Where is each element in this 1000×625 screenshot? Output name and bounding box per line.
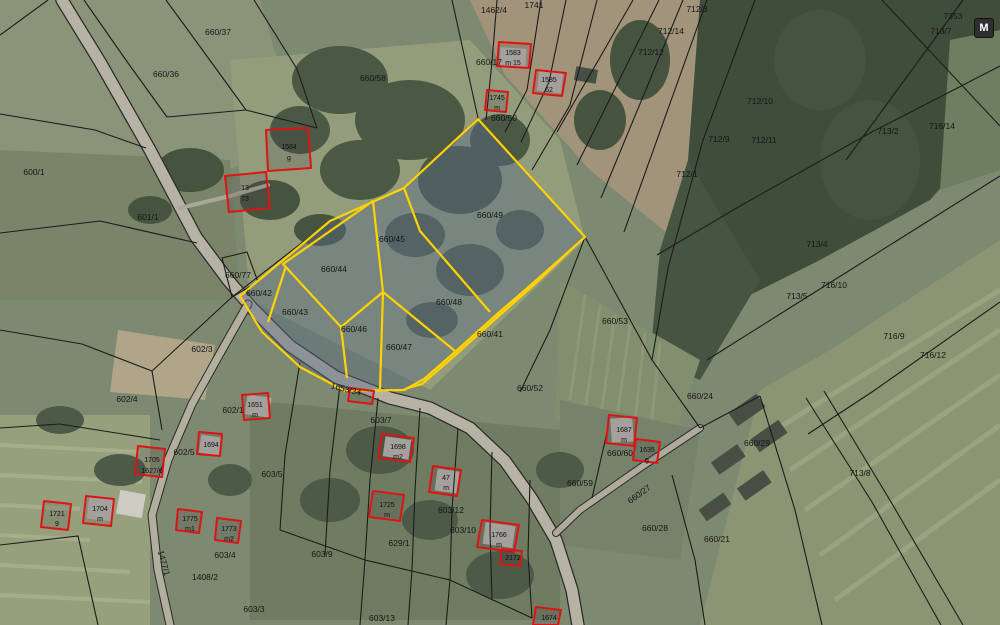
building-label: 1584	[281, 144, 297, 151]
parcel-label: 712/12	[638, 47, 664, 57]
parcel-label: 660/49	[477, 210, 503, 220]
parcel-label: 603/9	[311, 549, 333, 559]
parcel-label: 660/37	[205, 27, 231, 37]
building-label: m	[97, 516, 103, 523]
building-label: g	[287, 155, 291, 162]
parcel-label: 602/1	[222, 405, 244, 415]
building-label: 73	[241, 196, 249, 203]
parcel-label: 713/5	[786, 291, 808, 301]
parcel-label: 660/48	[436, 297, 462, 307]
building-label: 1766	[491, 532, 507, 539]
parcel-label: 629/1	[388, 538, 410, 548]
parcel-label: 660/21	[704, 534, 730, 544]
parcel-label: 660/50	[491, 113, 517, 123]
parcel-label: 660/47	[386, 342, 412, 352]
building-label: 1635	[639, 447, 655, 454]
parcel-label: 660/29	[744, 438, 770, 448]
building-label: 1704	[92, 506, 108, 513]
parcel-label: 712/14	[658, 26, 684, 36]
parcel-label: 660/43	[282, 307, 308, 317]
building-label: 1694	[203, 442, 219, 449]
building-label: 1745	[489, 95, 505, 102]
parcel-label: 660/60	[607, 448, 633, 458]
parcel-label: 601/1	[137, 212, 159, 222]
building-label: 2172	[505, 555, 521, 562]
parcel-label: 603/5	[261, 469, 283, 479]
parcel-label: 603/4	[214, 550, 236, 560]
building-label: m2	[393, 454, 403, 461]
parcel-label: 660/52	[517, 383, 543, 393]
parcel-label: 713/7	[930, 26, 952, 36]
parcel-label: 716/14	[929, 121, 955, 131]
building-label: 1651	[247, 402, 263, 409]
building-label: m	[496, 542, 502, 549]
parcel-label: 660/58	[360, 73, 386, 83]
building-label: m2	[224, 536, 234, 543]
parcel-label: 712/9	[708, 134, 730, 144]
parcel-label: 660/46	[341, 324, 367, 334]
parcel-label: 712/3	[686, 4, 708, 14]
parcel-label: 603/7	[370, 415, 392, 425]
building-label: 62	[545, 87, 553, 94]
parcel-label: 1462/4	[481, 5, 507, 15]
parcel-label: 713/2	[877, 126, 899, 136]
parcel-label: 660/77	[225, 270, 251, 280]
parcel-label: 660/42	[246, 288, 272, 298]
building-label: m	[252, 412, 258, 419]
parcel-label: 1408/2	[192, 572, 218, 582]
parcel-label: 603/3	[243, 604, 265, 614]
building-label: 13	[241, 185, 249, 192]
building-label: 1721	[49, 511, 65, 518]
building-label: 1775	[182, 516, 198, 523]
parcel-label: 660/45	[379, 234, 405, 244]
parcel-label: 602/5	[173, 447, 195, 457]
parcel-label: 603/10	[450, 525, 476, 535]
cadastral-map-viewport[interactable]: 660/37 660/36 600/1 601/1 1462/4 1741 66…	[0, 0, 1000, 625]
building-label: m	[621, 437, 627, 444]
map-control-m-button[interactable]: M	[974, 18, 994, 38]
building-label: 1674	[541, 615, 557, 622]
building-label: m	[494, 105, 500, 112]
building-label: m	[443, 485, 449, 492]
parcel-label: 716/10	[821, 280, 847, 290]
building-label: 1627/6	[141, 468, 163, 475]
parcel-label: 602/3	[191, 344, 213, 354]
building-label: g	[645, 457, 649, 464]
parcel-label: 660/41	[477, 329, 503, 339]
building-label: 1705	[144, 457, 160, 464]
parcel-label: 603/12	[438, 505, 464, 515]
parcel-label: 712/10	[747, 96, 773, 106]
parcel-label: 712/11	[751, 135, 777, 145]
parcel-label: 7353	[944, 11, 963, 21]
building-label: 1583	[505, 50, 521, 57]
building-label: m1	[185, 526, 195, 533]
building-label: 9	[55, 521, 59, 528]
building-label: 1698	[390, 444, 406, 451]
parcel-label: 660/44	[321, 264, 347, 274]
building-label: 1725	[379, 502, 395, 509]
building-label: 1773	[221, 526, 237, 533]
parcel-label: 660/28	[642, 523, 668, 533]
building-label: m	[384, 512, 390, 519]
building-label: 1585	[541, 77, 557, 84]
building-outline	[225, 172, 270, 212]
parcel-label: 716/9	[883, 331, 905, 341]
parcel-label: 600/1	[23, 167, 45, 177]
parcel-label: 716/12	[920, 350, 946, 360]
parcel-label: 1741	[525, 0, 544, 10]
parcel-label: 713/4	[806, 239, 828, 249]
parcel-label: 660/17	[476, 57, 502, 67]
building-label: 1687	[616, 427, 632, 434]
parcel-label: 713/8	[849, 468, 871, 478]
parcel-label: 660/36	[153, 69, 179, 79]
parcel-label: 660/53	[602, 316, 628, 326]
parcel-label: 602/4	[116, 394, 138, 404]
map-canvas: 660/37 660/36 600/1 601/1 1462/4 1741 66…	[0, 0, 1000, 625]
building-label: 47	[442, 475, 450, 482]
parcel-label: 712/1	[676, 169, 698, 179]
building-label: m 15	[505, 60, 521, 67]
parcel-label: 660/59	[567, 478, 593, 488]
parcel-label: 603/13	[369, 613, 395, 623]
parcel-label: 660/24	[687, 391, 713, 401]
